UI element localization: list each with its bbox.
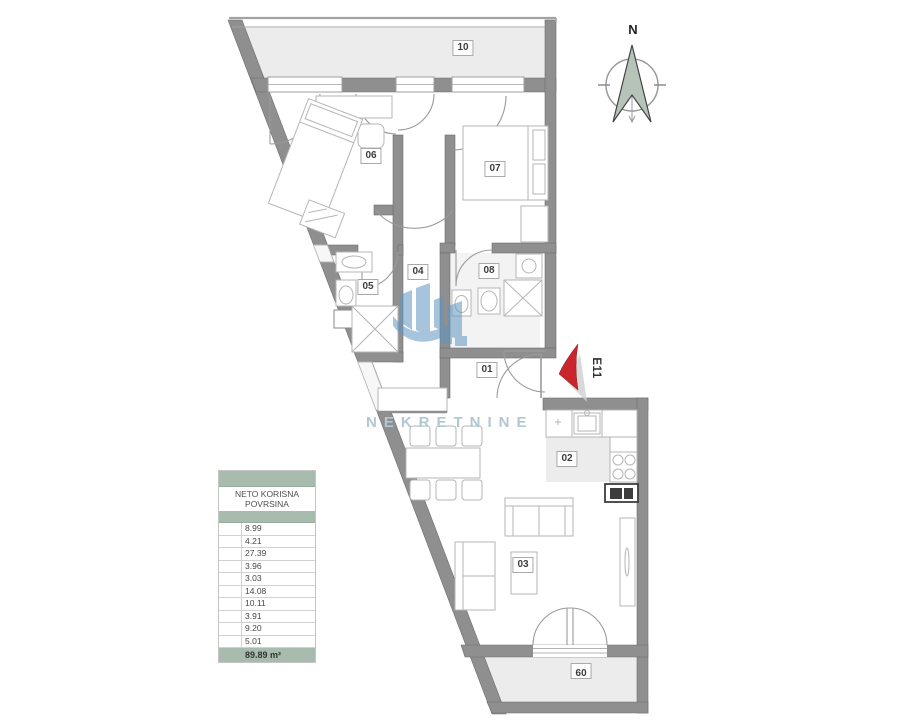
area-table-total: 89.89 m²: [219, 648, 315, 662]
french-door-right: [570, 608, 607, 645]
wall-bath05-top2: [398, 245, 403, 255]
area-table: NETO KORISNA POVRSINA 8.99 4.21 27.39 3.…: [218, 470, 316, 663]
area-row: 10.11: [219, 598, 315, 611]
facade-windows: [268, 77, 524, 92]
compass-north-label: N: [622, 22, 644, 37]
wardrobe: [620, 518, 635, 606]
area-row: 27.39: [219, 548, 315, 561]
room-label-01: 01: [476, 362, 497, 378]
area-row: 4.21: [219, 536, 315, 549]
compass: [598, 45, 666, 122]
sink-05: [336, 252, 372, 272]
french-door-opening: [533, 645, 607, 657]
area-table-top-band: [219, 471, 315, 487]
area-table-header: NETO KORISNA POVRSINA: [219, 487, 315, 511]
terrace-railing: [229, 18, 556, 27]
room-label-07: 07: [484, 161, 505, 177]
washer-08: [516, 254, 542, 278]
kitchen-top-wall: [543, 398, 648, 410]
door-terrace-vestibule: [398, 94, 434, 130]
area-table-rows: 8.99 4.21 27.39 3.96 3.03 14.08 10.11 3.…: [219, 523, 315, 648]
wall-room07-left: [445, 135, 455, 245]
area-table-column-divider: [241, 523, 242, 648]
closet-hatch: [300, 200, 345, 238]
dining-chair: [462, 480, 482, 500]
wall-bath08-top2: [492, 243, 556, 253]
wall-bath05-bottom: [354, 352, 403, 362]
nightstand: [521, 206, 548, 242]
french-door-left: [533, 608, 570, 645]
room06-furniture: [268, 96, 392, 238]
area-row: 14.08: [219, 586, 315, 599]
sideboard: [378, 388, 447, 412]
area-row: 3.91: [219, 611, 315, 624]
arch-stub: [374, 205, 393, 215]
room-label-10: 10: [452, 40, 473, 56]
entrance-arrow: [559, 344, 587, 402]
area-table-mid-band: [219, 511, 315, 523]
room-label-08: 08: [478, 263, 499, 279]
dining-table: [406, 448, 480, 478]
area-row: 8.99: [219, 523, 315, 536]
wall-bath08-top1: [440, 243, 455, 253]
area-row: 3.96: [219, 561, 315, 574]
room-label-06: 06: [360, 148, 381, 164]
dining-chair: [410, 480, 430, 500]
floorplan-drawing: [0, 0, 900, 720]
room-label-04: 04: [407, 264, 428, 280]
room-label-02: 02: [556, 451, 577, 467]
terrace-10-floor: [233, 28, 545, 78]
entrance-label: E11: [590, 357, 602, 378]
area-row: 5.01: [219, 636, 315, 649]
dining-chair: [436, 480, 456, 500]
floorplan-page: NEKRETNINE N E11 01 02 03 04 05 06 07 08…: [0, 0, 900, 720]
right-wall-lower: [637, 398, 648, 713]
wall-bath08-bottom: [440, 348, 556, 358]
chair-2: [358, 124, 384, 148]
area-row: 9.20: [219, 623, 315, 636]
living-furniture: [455, 498, 635, 610]
room-label-03: 03: [512, 557, 533, 573]
terrace-09-wall: [487, 702, 648, 713]
room-label-09: 09: [570, 663, 591, 679]
bathroom05-fixtures: [334, 252, 398, 352]
room07-furniture: [463, 126, 548, 242]
area-row: 3.03: [219, 573, 315, 586]
door-hall-living-arc: [497, 354, 541, 398]
room-label-05: 05: [357, 279, 378, 295]
watermark-text: NEKRETNINE: [366, 414, 534, 431]
